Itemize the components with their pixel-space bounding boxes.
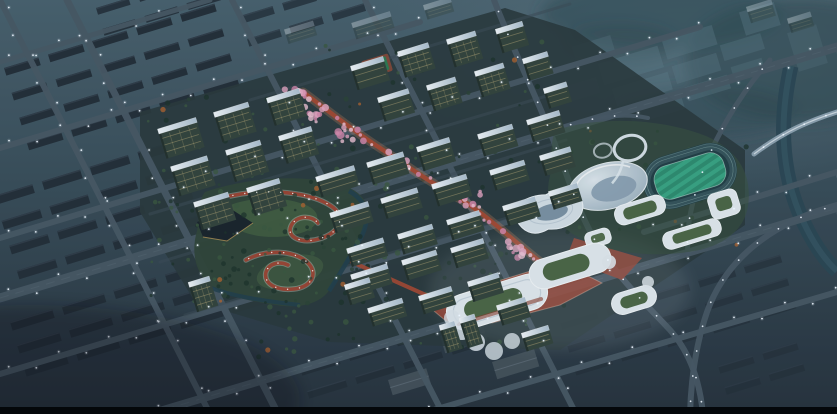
street-light — [558, 201, 560, 203]
street-light — [479, 391, 481, 393]
street-light — [757, 242, 759, 244]
street-light — [337, 197, 339, 199]
street-light — [12, 34, 14, 36]
street-light — [241, 79, 243, 81]
street-light — [825, 115, 827, 117]
street-light — [176, 225, 178, 227]
walkway-light — [244, 193, 245, 194]
street-light — [509, 138, 511, 140]
street-light — [86, 277, 88, 279]
street-light — [592, 118, 594, 120]
street-light — [652, 224, 654, 226]
street-light — [402, 111, 404, 113]
street-light — [377, 35, 379, 37]
street-light — [485, 232, 487, 234]
walkway-light — [275, 287, 276, 288]
street-light — [627, 53, 629, 55]
street-light — [258, 291, 260, 293]
street-light — [695, 377, 697, 379]
street-light — [36, 82, 38, 84]
street-light — [498, 11, 500, 13]
street-light — [208, 306, 210, 308]
street-light — [614, 115, 616, 117]
street-light — [386, 292, 388, 294]
street-light — [710, 301, 712, 303]
street-light — [458, 231, 460, 233]
street-light — [129, 245, 131, 247]
walkway-light — [232, 195, 233, 196]
street-light — [523, 320, 525, 322]
street-light — [622, 279, 624, 281]
street-light — [564, 170, 566, 172]
street-light — [738, 259, 740, 261]
street-light — [190, 95, 192, 97]
walkway-light — [312, 270, 313, 271]
street-light — [162, 94, 164, 96]
street-light — [559, 123, 561, 125]
street-light — [358, 261, 360, 263]
street-light — [281, 157, 283, 159]
street-light — [607, 259, 609, 261]
walkway-light — [266, 279, 267, 280]
street-light — [410, 340, 412, 342]
street-light — [205, 170, 207, 172]
street-light — [418, 17, 420, 19]
walkway-light — [267, 268, 268, 269]
street-light — [809, 175, 811, 177]
street-light — [437, 172, 439, 174]
street-light — [186, 247, 188, 249]
street-light — [380, 127, 382, 129]
street-light — [709, 239, 711, 241]
street-light — [221, 292, 223, 294]
street-light — [824, 208, 826, 210]
walkway-light — [299, 287, 300, 288]
street-light — [687, 258, 689, 260]
street-light — [519, 292, 521, 294]
street-light — [103, 82, 105, 84]
street-light — [530, 376, 532, 378]
street-light — [136, 262, 138, 264]
street-light — [694, 194, 696, 196]
street-light — [308, 360, 310, 362]
walkway-light — [304, 195, 305, 196]
street-light — [702, 325, 704, 327]
street-light — [56, 102, 58, 104]
walkway-light — [316, 221, 317, 222]
walkway-light — [294, 221, 295, 222]
street-light — [79, 35, 81, 37]
street-light — [761, 68, 763, 70]
street-light — [507, 392, 509, 394]
street-light — [835, 287, 837, 289]
street-light — [479, 97, 481, 99]
street-light — [208, 228, 210, 230]
street-light — [763, 146, 765, 148]
street-light — [733, 208, 735, 210]
street-light — [527, 79, 529, 81]
street-light — [8, 54, 10, 56]
street-light — [292, 64, 294, 66]
street-light — [761, 318, 763, 320]
street-light — [8, 230, 10, 232]
walkway-light — [290, 232, 291, 233]
street-light — [637, 273, 639, 275]
street-light — [636, 115, 638, 117]
street-light — [224, 320, 226, 322]
street-light — [422, 102, 424, 104]
street-light — [109, 225, 111, 227]
street-light — [245, 340, 247, 342]
street-light — [57, 215, 59, 217]
street-light — [537, 303, 539, 305]
street-light — [759, 224, 761, 226]
street-light — [336, 363, 338, 365]
street-light — [58, 40, 60, 42]
street-light — [139, 110, 141, 112]
walkway-light — [277, 262, 278, 263]
street-light — [550, 66, 552, 68]
walkway-light — [248, 258, 249, 259]
street-light — [487, 157, 489, 159]
street-light — [373, 7, 375, 9]
street-light — [656, 315, 658, 317]
street-light — [682, 331, 684, 333]
street-light — [450, 177, 452, 179]
street-light — [258, 213, 260, 215]
street-light — [32, 54, 34, 56]
walkway-light — [332, 231, 333, 232]
street-light — [782, 134, 784, 136]
street-light — [111, 109, 113, 111]
street-light — [429, 112, 431, 114]
street-light — [308, 276, 310, 278]
street-light — [639, 297, 641, 299]
walkway-light — [339, 221, 340, 222]
walkway-light — [336, 210, 337, 211]
street-light — [733, 317, 735, 319]
walkway-light — [305, 217, 306, 218]
street-light — [701, 401, 703, 403]
street-light — [331, 142, 333, 144]
street-light — [36, 141, 38, 143]
street-light — [153, 292, 155, 294]
street-light — [367, 32, 369, 34]
street-light — [106, 200, 108, 202]
street-light — [747, 87, 749, 89]
street-light — [692, 375, 694, 377]
street-light — [408, 246, 410, 248]
street-light — [264, 63, 266, 65]
street-light — [213, 78, 215, 80]
walkway-light — [295, 255, 296, 256]
street-light — [785, 192, 787, 194]
street-light — [459, 153, 461, 155]
street-light — [358, 345, 360, 347]
street-light — [759, 63, 761, 65]
street-light — [151, 177, 153, 179]
street-light — [709, 78, 711, 80]
street-light — [809, 48, 811, 50]
street-light — [609, 270, 611, 272]
street-light — [244, 35, 246, 37]
street-light — [631, 346, 633, 348]
street-light — [7, 288, 9, 290]
street-light — [303, 141, 305, 143]
street-light — [197, 244, 199, 246]
street-light — [158, 10, 160, 12]
street-light — [35, 231, 37, 233]
street-light — [599, 52, 601, 54]
street-light — [395, 33, 397, 35]
street-light — [570, 124, 572, 126]
street-light — [264, 54, 266, 56]
street-light — [555, 147, 557, 149]
street-light — [36, 292, 38, 294]
bottom-black-bar — [0, 407, 837, 414]
street-light — [315, 48, 317, 50]
street-light — [676, 38, 678, 40]
street-light — [687, 241, 689, 243]
street-light — [778, 228, 780, 230]
walkway-light — [309, 281, 310, 282]
street-light — [737, 242, 739, 244]
walkway-light — [298, 239, 299, 240]
street-light — [172, 197, 174, 199]
street-light — [254, 156, 256, 158]
street-light — [390, 320, 392, 322]
street-light — [408, 168, 410, 170]
street-light — [581, 361, 583, 363]
street-light — [812, 303, 814, 305]
street-light — [353, 126, 355, 128]
street-light — [689, 217, 691, 219]
street-light — [446, 149, 448, 151]
street-light — [800, 217, 802, 219]
street-light — [784, 302, 786, 304]
street-light — [85, 40, 87, 42]
street-light — [688, 97, 690, 99]
street-light — [88, 125, 90, 127]
street-light — [183, 186, 185, 188]
walkway-light — [292, 193, 293, 194]
street-light — [84, 216, 86, 218]
street-light — [573, 194, 575, 196]
street-light — [387, 187, 389, 189]
walkway-light — [322, 237, 323, 238]
street-light — [358, 183, 360, 185]
street-light — [341, 225, 343, 227]
walkway-light — [310, 240, 311, 241]
street-light — [507, 34, 509, 36]
walkway-light — [326, 203, 327, 204]
street-light — [133, 272, 135, 274]
street-light — [124, 102, 126, 104]
walkway-light — [315, 198, 316, 199]
street-light — [803, 123, 805, 125]
street-light — [337, 202, 339, 204]
walkway-light — [268, 191, 269, 192]
walkway-light — [283, 252, 284, 253]
street-light — [8, 140, 10, 142]
street-light — [547, 124, 549, 126]
street-light — [609, 108, 611, 110]
street-light — [437, 333, 439, 335]
street-light — [673, 333, 675, 335]
street-light — [8, 7, 10, 9]
street-light — [451, 96, 453, 98]
walkway-light — [259, 254, 260, 255]
street-light — [567, 387, 569, 389]
street-light — [135, 25, 137, 27]
street-light — [408, 330, 410, 332]
street-light — [487, 318, 489, 320]
walkway-light — [287, 289, 288, 290]
street-light — [474, 225, 476, 227]
street-light — [335, 277, 337, 279]
walkway-light — [280, 192, 281, 193]
street-light — [509, 300, 511, 302]
street-light — [105, 197, 107, 199]
street-light — [58, 273, 60, 275]
walkway-light — [256, 192, 257, 193]
street-light — [788, 227, 790, 229]
street-light — [289, 102, 291, 104]
street-light — [738, 82, 740, 84]
street-light — [308, 198, 310, 200]
street-light — [637, 112, 639, 114]
street-light — [287, 217, 289, 219]
street-light — [494, 245, 496, 247]
street-light — [426, 130, 428, 132]
street-light — [543, 340, 545, 342]
street-light — [788, 67, 790, 69]
street-light — [435, 247, 437, 249]
street-light — [722, 279, 724, 281]
street-light — [696, 350, 698, 352]
street-light — [148, 149, 150, 151]
street-light — [365, 272, 367, 274]
street-light — [386, 348, 388, 350]
walkway-light — [305, 260, 306, 261]
street-light — [733, 107, 735, 109]
street-light — [809, 209, 811, 211]
street-light — [361, 245, 363, 247]
street-light — [385, 262, 387, 264]
street-light — [535, 217, 537, 219]
street-light — [609, 362, 611, 364]
street-light — [537, 142, 539, 144]
street-light — [84, 177, 86, 179]
street-light — [498, 272, 500, 274]
street-light — [587, 127, 589, 129]
street-light — [528, 82, 530, 84]
street-light — [397, 54, 399, 56]
street-light — [293, 130, 295, 132]
street-light — [317, 177, 319, 179]
street-light — [649, 37, 651, 39]
street-light — [698, 22, 700, 24]
street-light — [100, 54, 102, 56]
street-light — [577, 68, 579, 70]
street-light — [690, 400, 692, 402]
street-light — [236, 232, 238, 234]
street-light — [59, 124, 61, 126]
street-light — [80, 149, 82, 151]
street-light — [458, 315, 460, 317]
street-light — [711, 149, 713, 151]
street-light — [501, 81, 503, 83]
street-light — [517, 56, 519, 58]
street-light — [594, 238, 596, 240]
walkway-light — [271, 252, 272, 253]
street-light — [721, 128, 723, 130]
street-light — [757, 191, 759, 193]
render-canvas — [0, 0, 837, 414]
street-light — [200, 273, 202, 275]
street-light — [240, 7, 242, 9]
street-light — [158, 243, 160, 245]
street-light — [681, 224, 683, 226]
street-light — [235, 307, 237, 309]
street-light — [558, 377, 560, 379]
street-light — [686, 354, 688, 356]
street-light — [537, 101, 539, 103]
street-light — [35, 55, 37, 57]
street-light — [401, 82, 403, 84]
street-light — [582, 216, 584, 218]
street-light — [702, 171, 704, 173]
aerial-masterplan-render — [0, 0, 837, 414]
